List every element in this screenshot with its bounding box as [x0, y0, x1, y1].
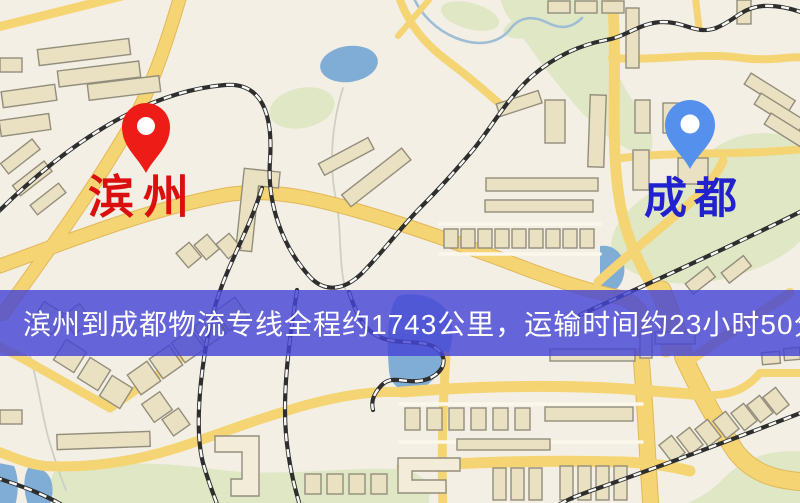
building — [496, 90, 542, 116]
building — [461, 229, 475, 248]
park — [266, 82, 339, 135]
map-canvas — [0, 0, 800, 503]
building — [485, 200, 593, 212]
building — [495, 229, 509, 248]
building — [37, 38, 130, 65]
parks-layer — [51, 0, 800, 503]
route-info-text: 滨州到成都物流专线全程约1743公里，运输时间约23小时50分钟. — [0, 303, 800, 343]
road — [0, 0, 130, 28]
origin-label: 滨州 — [88, 174, 198, 220]
building — [515, 408, 530, 430]
building — [560, 466, 573, 500]
building — [545, 407, 633, 421]
building — [1, 84, 57, 107]
building — [580, 229, 594, 248]
building — [371, 474, 387, 494]
building — [635, 100, 650, 133]
building — [486, 178, 598, 191]
park — [438, 0, 503, 36]
building — [602, 1, 624, 13]
building — [478, 229, 492, 248]
building — [0, 114, 51, 137]
building — [493, 468, 506, 500]
building — [588, 95, 607, 168]
building — [529, 229, 543, 248]
building — [398, 458, 460, 493]
building — [0, 410, 22, 424]
building — [529, 468, 542, 500]
building — [444, 229, 458, 248]
building — [449, 408, 464, 430]
building — [57, 431, 150, 449]
map-screenshot: 滨州到成都物流专线全程约1743公里，运输时间约23小时50分钟. 滨州 成都 — [0, 0, 800, 503]
building — [30, 183, 66, 215]
building — [349, 474, 365, 494]
road — [695, 0, 699, 28]
building — [548, 1, 570, 13]
building — [546, 229, 560, 248]
building — [457, 439, 550, 450]
road — [612, 56, 800, 59]
building — [493, 408, 508, 430]
destination-label: 成都 — [644, 178, 744, 221]
building — [305, 474, 321, 494]
building — [545, 100, 565, 143]
road — [641, 356, 651, 503]
building — [663, 103, 678, 133]
building — [511, 468, 524, 500]
building — [318, 138, 374, 176]
stream — [332, 88, 346, 292]
building — [405, 408, 420, 430]
building — [327, 474, 343, 494]
building — [427, 408, 442, 430]
road — [704, 373, 760, 395]
building — [626, 8, 639, 68]
route-info-banner: 滨州到成都物流专线全程约1743公里，运输时间约23小时50分钟. — [0, 290, 800, 356]
building — [563, 229, 577, 248]
building — [0, 58, 22, 72]
building — [575, 1, 597, 13]
lake — [318, 42, 380, 86]
building — [471, 408, 486, 430]
building — [512, 229, 526, 248]
